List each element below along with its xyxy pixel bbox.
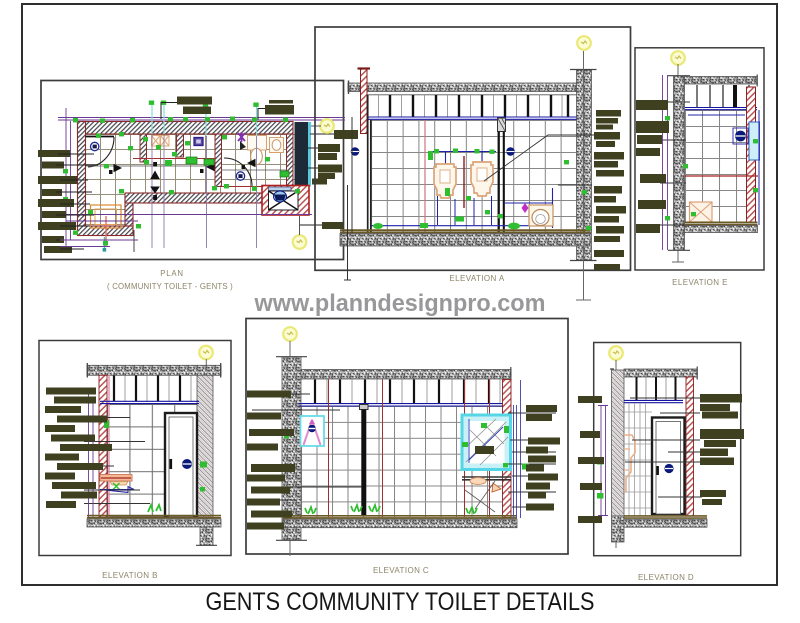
svg-text:( COMMUNITY TOILET - GENTS ): ( COMMUNITY TOILET - GENTS ) [107,282,233,291]
svg-text:ELEVATION C: ELEVATION C [373,566,429,575]
svg-text:GENTS COMMUNITY TOILET DETAILS: GENTS COMMUNITY TOILET DETAILS [206,588,595,616]
svg-text:www.planndesignpro.com: www.planndesignpro.com [254,290,546,317]
svg-text:ELEVATION B: ELEVATION B [102,571,158,580]
svg-text:PLAN: PLAN [160,269,184,278]
svg-text:ELEVATION D: ELEVATION D [638,573,694,582]
svg-text:ELEVATION A: ELEVATION A [449,274,504,283]
svg-text:ELEVATION E: ELEVATION E [672,278,728,287]
